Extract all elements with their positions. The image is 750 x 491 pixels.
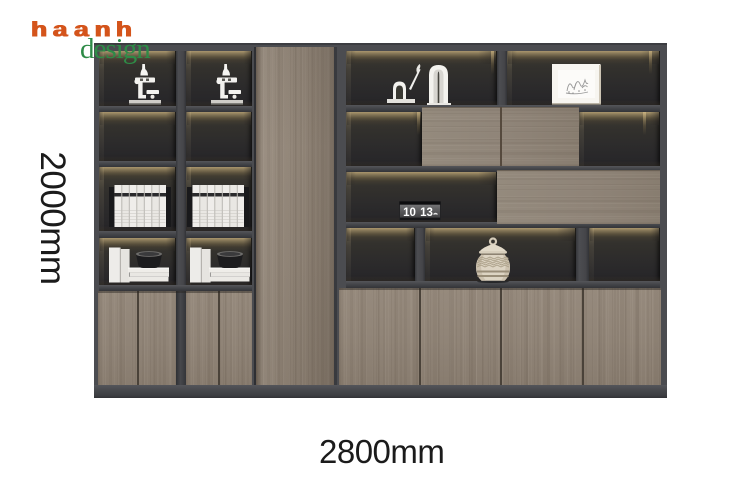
svg-text:10: 10 xyxy=(403,207,416,219)
svg-text:13: 13 xyxy=(420,207,433,219)
